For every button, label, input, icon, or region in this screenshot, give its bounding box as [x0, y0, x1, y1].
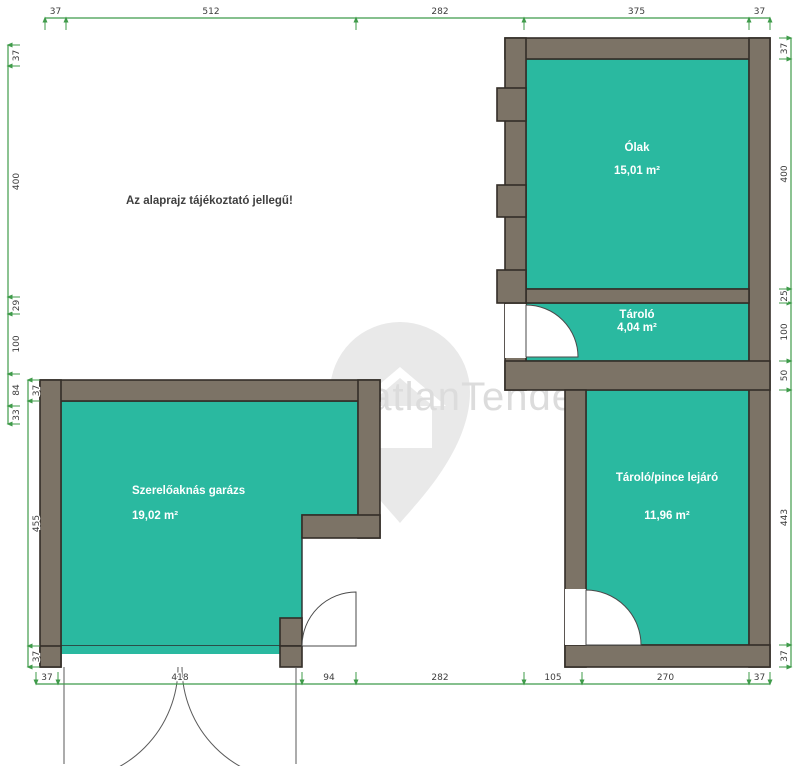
- dimension-label: 400: [780, 165, 790, 182]
- dimension-label: 84: [12, 384, 22, 396]
- dimension-label: 33: [12, 409, 22, 420]
- garage-door-arc-right: [182, 667, 296, 766]
- olak-name-label: Ólak: [625, 141, 651, 154]
- dimension-label: 270: [657, 673, 674, 683]
- wall-right-building-top: [505, 38, 770, 59]
- dimension-label: 50: [780, 370, 790, 382]
- dimension-label: 400: [12, 173, 22, 190]
- dimension-chain-right: 37400251005044337: [779, 36, 793, 670]
- dimension-label: 418: [171, 673, 188, 683]
- dimension-label: 25: [780, 290, 790, 301]
- dimension-label: 282: [431, 7, 448, 17]
- dimension-label: 37: [780, 650, 790, 661]
- wall-right-building-right: [749, 38, 770, 667]
- dimension-label: 105: [544, 673, 561, 683]
- wall-garage-bottom-right: [280, 646, 302, 667]
- dimension-chain-top: 3751228237537: [43, 7, 773, 30]
- disclaimer-text: Az alaprajz tájékoztató jellegű!: [126, 195, 293, 207]
- wall-tarolo-bottom: [505, 361, 770, 390]
- dimension-label: 375: [628, 7, 645, 17]
- dimension-label: 282: [431, 673, 448, 683]
- dimension-chain-left: 37400291008433: [7, 43, 23, 427]
- dimension-label: 37: [32, 385, 42, 396]
- dimension-label: 37: [754, 7, 765, 17]
- dimension-label: 37: [780, 43, 790, 54]
- garage-door-threshold: [61, 646, 280, 654]
- wall-pillar-2: [497, 185, 526, 217]
- wall-garage-bottom-left: [40, 646, 61, 667]
- dimension-label: 455: [32, 515, 42, 532]
- dimension-chain-bottom: 374189428210527037: [34, 672, 773, 686]
- tarolo-door-opening: [505, 304, 526, 358]
- dimension-label: 37: [41, 673, 52, 683]
- wall-olak-tarolo-divider: [526, 289, 749, 303]
- tarolo-name-label: Tároló: [619, 309, 654, 321]
- dimension-label: 100: [12, 335, 22, 352]
- floor-plan-canvas: IngatlanTender: [0, 0, 800, 766]
- tarolo-area-label: 4,04 m²: [617, 322, 657, 334]
- wall-garage-door-jamb: [280, 618, 302, 646]
- garage-door-arc-left: [64, 667, 178, 766]
- wall-garage-step: [302, 515, 380, 538]
- wall-pillar-1: [497, 88, 526, 121]
- tarolo-pince-name-label: Tároló/pince lejáró: [616, 472, 718, 484]
- dimension-label: 37: [32, 651, 42, 662]
- wall-pince-bottom: [565, 645, 770, 667]
- dimension-label: 512: [202, 7, 219, 17]
- wall-pillar-3: [497, 270, 526, 303]
- dimension-label: 94: [323, 673, 335, 683]
- dimension-label: 100: [780, 323, 790, 340]
- garazs-area-label: 19,02 m²: [132, 510, 178, 522]
- olak-area-label: 15,01 m²: [614, 165, 660, 177]
- dimension-label: 443: [780, 509, 790, 526]
- dimension-label: 37: [754, 673, 765, 683]
- wall-garage-left: [40, 380, 61, 667]
- tarolo-pince-area-label: 11,96 m²: [644, 510, 690, 522]
- garazs-name-label: Szerelőaknás garázs: [132, 485, 245, 497]
- dimension-label: 29: [12, 300, 22, 312]
- dimension-label: 37: [50, 7, 61, 17]
- pince-door-opening: [565, 589, 586, 645]
- garage-side-door-swing: [302, 592, 356, 646]
- wall-garage-top: [40, 380, 380, 401]
- dimension-label: 37: [12, 50, 22, 61]
